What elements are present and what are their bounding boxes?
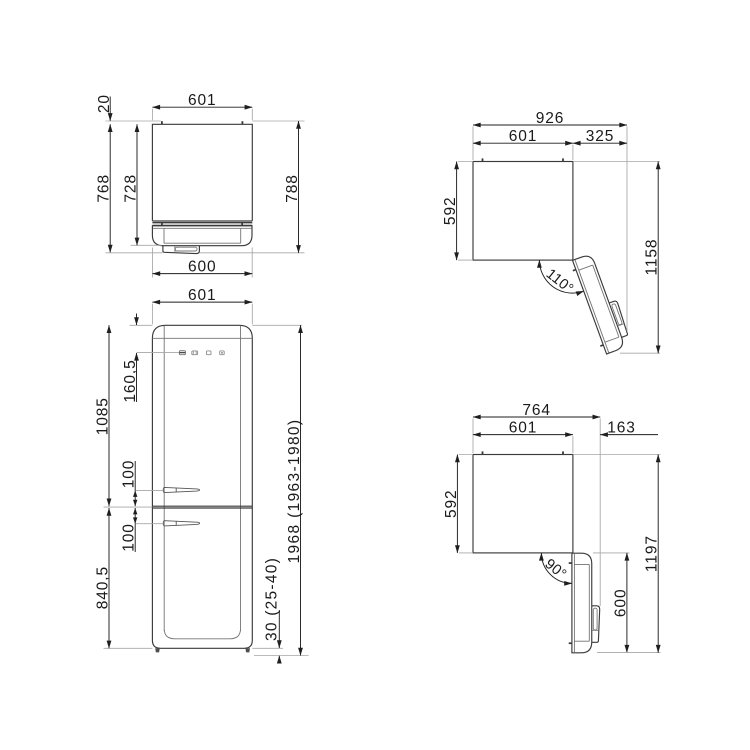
svg-text:768: 768 xyxy=(96,174,113,203)
svg-text:601: 601 xyxy=(509,419,538,436)
svg-text:592: 592 xyxy=(443,489,460,518)
svg-text:728: 728 xyxy=(122,174,139,203)
svg-text:1197: 1197 xyxy=(644,535,661,572)
svg-text:30 (25-40): 30 (25-40) xyxy=(264,557,281,641)
svg-text:110°: 110° xyxy=(543,266,576,297)
svg-text:840,5: 840,5 xyxy=(94,566,111,609)
svg-text:1968 (1963-1980): 1968 (1963-1980) xyxy=(286,419,303,564)
svg-text:788: 788 xyxy=(284,174,301,203)
svg-text:764: 764 xyxy=(522,402,551,419)
svg-text:100: 100 xyxy=(121,523,138,552)
svg-text:600: 600 xyxy=(612,589,629,618)
svg-text:1158: 1158 xyxy=(644,239,661,276)
svg-text:592: 592 xyxy=(442,197,459,226)
svg-text:601: 601 xyxy=(188,287,217,304)
svg-text:325: 325 xyxy=(586,128,615,145)
svg-text:20: 20 xyxy=(96,94,113,113)
svg-text:926: 926 xyxy=(536,110,565,127)
svg-text:1085: 1085 xyxy=(94,397,111,435)
svg-text:100: 100 xyxy=(121,460,138,489)
svg-text:90°: 90° xyxy=(542,556,570,583)
svg-text:601: 601 xyxy=(188,92,217,109)
svg-text:160,5: 160,5 xyxy=(122,359,139,402)
svg-text:600: 600 xyxy=(188,258,217,275)
svg-text:163: 163 xyxy=(607,419,636,436)
svg-text:601: 601 xyxy=(509,128,538,145)
